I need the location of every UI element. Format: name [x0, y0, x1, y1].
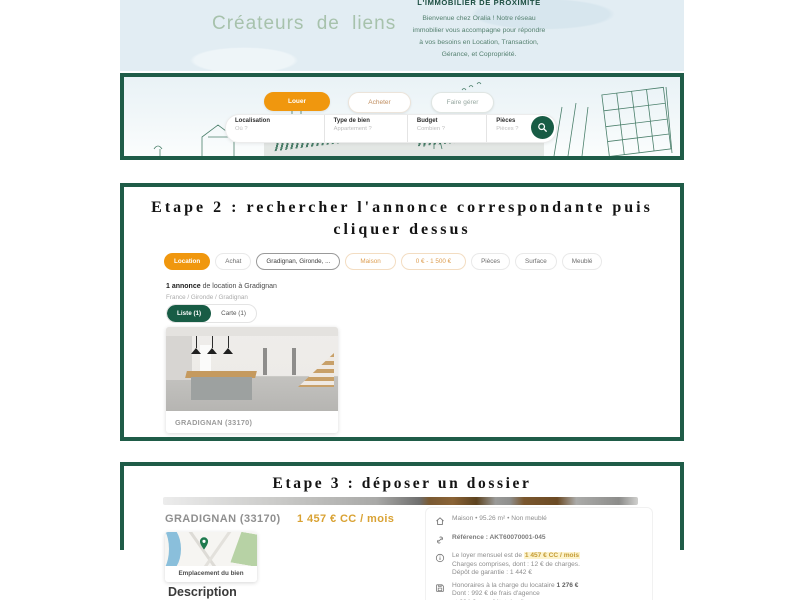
- map-thumbnail[interactable]: Emplacement du bien: [165, 532, 257, 582]
- filter-pill-maison[interactable]: Maison: [345, 253, 395, 270]
- gallery-strip: [163, 497, 638, 505]
- field-label: Budget: [417, 118, 486, 124]
- listing-card[interactable]: GRADIGNAN (33170): [166, 327, 338, 433]
- step2-title-line2: cliquer dessus: [124, 219, 680, 241]
- intro-title: L'IMMOBILIER DE PROXIMITÉ: [372, 0, 586, 7]
- field-placeholder: Où ?: [235, 126, 324, 132]
- map-label: Emplacement du bien: [165, 566, 257, 582]
- detail-fees-text: Honoraires à la charge du locataire 1 27…: [452, 582, 643, 600]
- intro-line: Gérance, et Copropriété.: [372, 49, 586, 61]
- results-count-number: 1 annonce: [166, 283, 201, 290]
- filter-pill-pieces[interactable]: Pièces: [471, 253, 510, 270]
- field-placeholder: Combien ?: [417, 126, 486, 132]
- rent-line2: Charges comprises, dont : 12 € de charge…: [452, 561, 580, 568]
- fees-amount: 1 276 €: [556, 582, 578, 589]
- fees-pre: Honoraires à la charge du locataire: [452, 582, 556, 589]
- tab-louer[interactable]: Louer: [264, 92, 330, 111]
- toggle-carte-button[interactable]: Carte (1): [211, 305, 256, 322]
- intro-block: L'IMMOBILIER DE PROXIMITÉ Bienvenue chez…: [372, 0, 586, 61]
- hero-search-bar: Localisation Où ? Type de bien Apparteme…: [225, 114, 557, 143]
- detail-reference-text: Référence : AKT60070001-045: [452, 534, 643, 549]
- listing-price: 1 457 € CC / mois: [297, 513, 394, 525]
- magnifier-icon: [537, 122, 548, 133]
- map-pin-icon: [198, 536, 210, 551]
- house-icon: [435, 515, 445, 530]
- listing-photo: [166, 327, 338, 411]
- listing-details-panel: Maison • 95.26 m² • Non meublé Référence…: [425, 507, 653, 600]
- tab-acheter[interactable]: Acheter: [348, 92, 411, 113]
- step3-title: Etape 3 : déposer un dossier: [124, 474, 680, 495]
- info-icon: [435, 552, 445, 578]
- rent-highlight: 1 457 € CC / mois: [524, 552, 580, 559]
- detail-row-type: Maison • 95.26 m² • Non meublé: [435, 515, 643, 530]
- search-field-type-de-bien[interactable]: Type de bien Appartement ?: [325, 115, 408, 142]
- step2-title: Etape 2 : rechercher l'annonce correspon…: [124, 197, 680, 240]
- map-art: [165, 532, 257, 566]
- detail-row-rent: Le loyer mensuel est de 1 457 € CC / moi…: [435, 552, 643, 578]
- search-button[interactable]: [531, 116, 554, 139]
- rent-pre: Le loyer mensuel est de: [452, 552, 524, 559]
- tutorial-page: Créateurs de liens L'IMMOBILIER DE PROXI…: [0, 0, 800, 600]
- search-field-budget[interactable]: Budget Combien ?: [408, 115, 487, 142]
- filter-pill-location[interactable]: Location: [164, 253, 210, 270]
- toggle-liste-button[interactable]: Liste (1): [167, 305, 211, 322]
- step2-title-line1: Etape 2 : rechercher l'annonce correspon…: [124, 197, 680, 219]
- filter-pill-meuble[interactable]: Meublé: [562, 253, 603, 270]
- detail-row-fees: Honoraires à la charge du locataire 1 27…: [435, 582, 643, 600]
- rent-line3: Dépôt de garantie : 1 442 €: [452, 569, 532, 576]
- link-icon: [435, 534, 445, 549]
- fees-line2: Dont : 992 € de frais d'agence: [452, 590, 540, 597]
- breadcrumb[interactable]: France / Gironde / Gradignan: [166, 294, 248, 301]
- view-toggle: Liste (1) Carte (1): [166, 304, 257, 323]
- intro-line: Bienvenue chez Oralia ! Notre réseau: [372, 13, 586, 25]
- detail-rent-text: Le loyer mensuel est de 1 457 € CC / moi…: [452, 552, 643, 578]
- step2-section: Etape 2 : rechercher l'annonce correspon…: [120, 183, 684, 441]
- save-icon: [435, 582, 445, 600]
- detail-type-text: Maison • 95.26 m² • Non meublé: [452, 515, 643, 530]
- filter-pill-bar: Location Achat Gradignan, Gironde, ... M…: [164, 253, 602, 270]
- filter-pill-achat[interactable]: Achat: [215, 253, 251, 270]
- filter-pill-budget[interactable]: 0 € - 1 500 €: [401, 253, 466, 270]
- staircase: [298, 353, 334, 387]
- field-label: Type de bien: [334, 118, 407, 124]
- hero-header: Créateurs de liens L'IMMOBILIER DE PROXI…: [120, 0, 684, 71]
- results-count-rest: de location à Gradignan: [201, 283, 277, 290]
- intro-line: immobilier vous accompagne pour répondre: [372, 25, 586, 37]
- detail-row-reference: Référence : AKT60070001-045: [435, 534, 643, 549]
- field-placeholder: Appartement ?: [334, 126, 407, 132]
- hero-search-section: Louer Acheter Faire gérer Localisation O…: [120, 73, 684, 160]
- filter-pill-surface[interactable]: Surface: [515, 253, 557, 270]
- description-heading: Description: [168, 585, 237, 599]
- intro-line: à vos besoins en Location, Transaction,: [372, 37, 586, 49]
- search-field-localisation[interactable]: Localisation Où ?: [226, 115, 325, 142]
- listing-city: GRADIGNAN (33170): [165, 513, 281, 525]
- tab-faire-gerer[interactable]: Faire gérer: [431, 92, 494, 113]
- filter-pill-ville[interactable]: Gradignan, Gironde, ...: [256, 253, 340, 270]
- listing-card-title: GRADIGNAN (33170): [166, 411, 338, 433]
- results-count: 1 annonce de location à Gradignan: [166, 283, 277, 290]
- field-label: Localisation: [235, 118, 324, 124]
